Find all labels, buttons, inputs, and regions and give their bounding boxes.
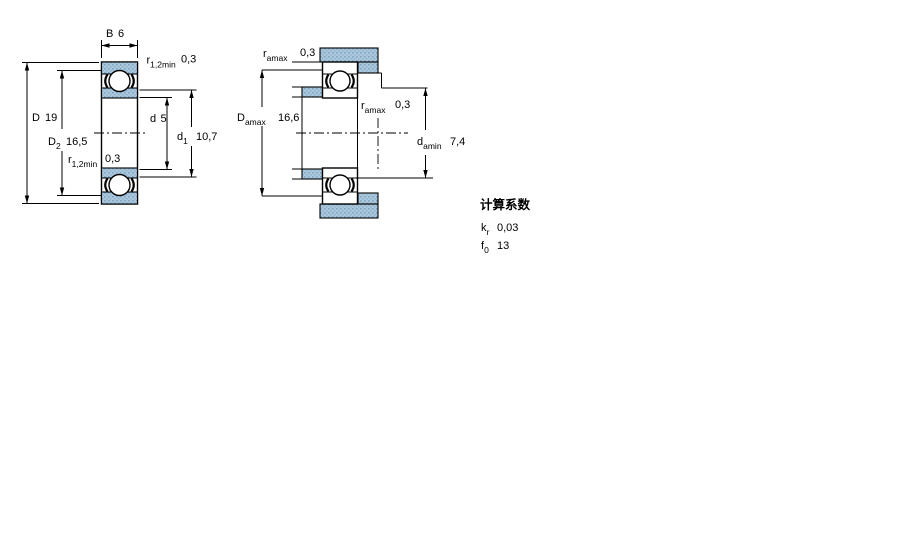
right-mounting-view: ramax0,3 Damax16,6 ramax0,3 damin7,4	[237, 47, 465, 218]
dim-label-D: D19	[32, 112, 57, 124]
left-cross-section-view: B6 r1,2min0,3 D19 D216,5	[22, 28, 217, 204]
dim-label-damin: damin7,4	[417, 136, 465, 151]
dimension-d: d5	[140, 98, 173, 170]
calc-factor-f0: f013	[481, 240, 509, 255]
housing-top	[320, 48, 378, 62]
dim-label-ra-top: ramax0,3	[263, 47, 315, 63]
housing-shoulder-top	[358, 62, 378, 73]
dim-label-d: d5	[150, 113, 167, 125]
dimension-D2: D216,5	[48, 71, 101, 196]
dim-label-ra-mid: ramax0,3	[361, 99, 410, 115]
dim-label-Damax: Damax16,6	[237, 112, 299, 127]
calculation-factors: 计算系数 kr0,03 f013	[480, 197, 531, 255]
housing-bottom	[320, 204, 378, 218]
shaft-shoulder-top	[302, 87, 323, 97]
dim-label-D2: D216,5	[48, 136, 87, 151]
calc-factors-title: 计算系数	[480, 197, 531, 212]
calc-factor-kr: kr0,03	[481, 222, 518, 237]
ball-top	[330, 71, 350, 91]
ball-top	[109, 71, 130, 92]
ball-bottom	[330, 175, 350, 195]
dimension-d1: d110,7	[140, 90, 218, 177]
housing-shoulder-bottom	[358, 193, 378, 204]
shaft-shoulder-bottom	[302, 169, 323, 179]
dimension-D: D19	[22, 63, 99, 204]
bearing-drawing-page: B6 r1,2min0,3 D19 D216,5	[0, 0, 900, 560]
ball-bottom	[109, 175, 130, 196]
dim-label-d1: d110,7	[177, 131, 217, 146]
dimension-B: B6	[102, 28, 138, 58]
technical-drawing: B6 r1,2min0,3 D19 D216,5	[0, 0, 900, 560]
dim-label-r-top: r1,2min0,3	[147, 54, 197, 70]
dim-label-B: B6	[106, 28, 124, 40]
